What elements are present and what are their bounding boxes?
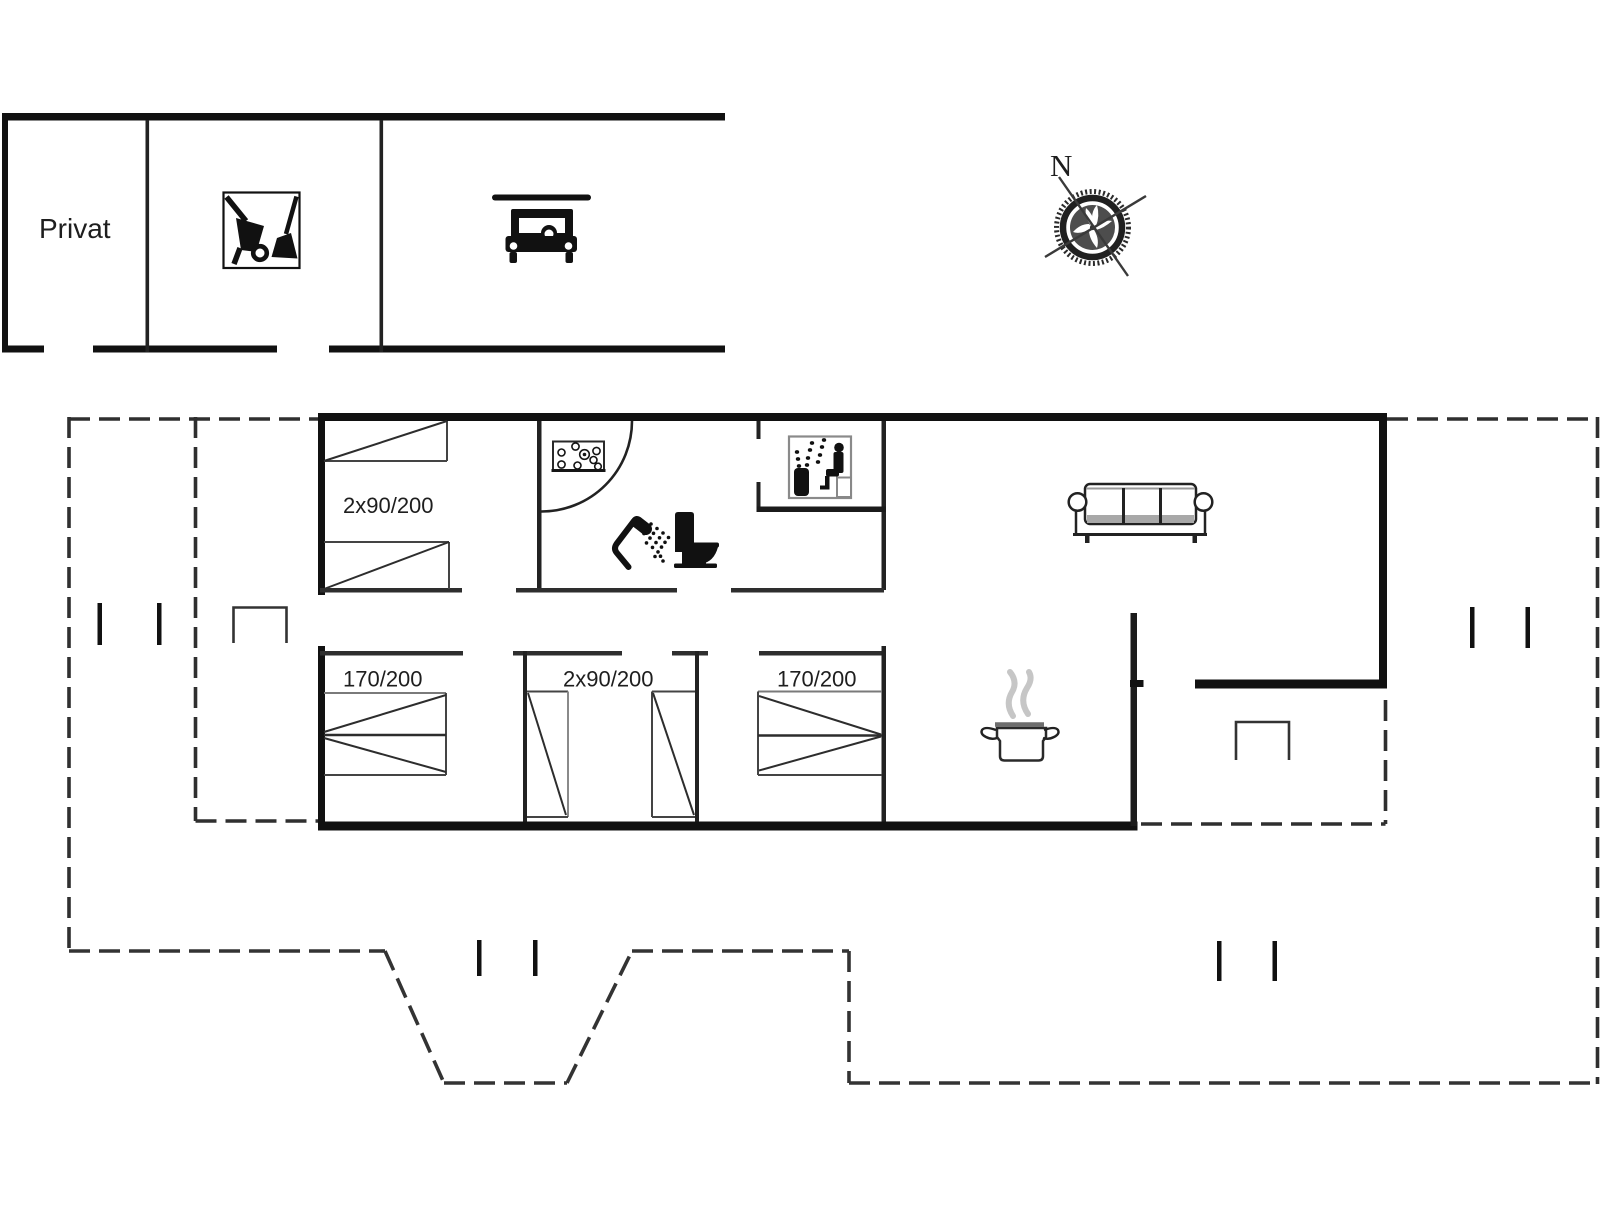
svg-text:N: N: [1050, 148, 1072, 183]
svg-text:Privat: Privat: [39, 213, 111, 244]
svg-text:2x90/200: 2x90/200: [563, 667, 654, 692]
svg-text:2x90/200: 2x90/200: [343, 493, 434, 518]
svg-text:170/200: 170/200: [343, 667, 423, 692]
svg-text:170/200: 170/200: [777, 667, 857, 692]
